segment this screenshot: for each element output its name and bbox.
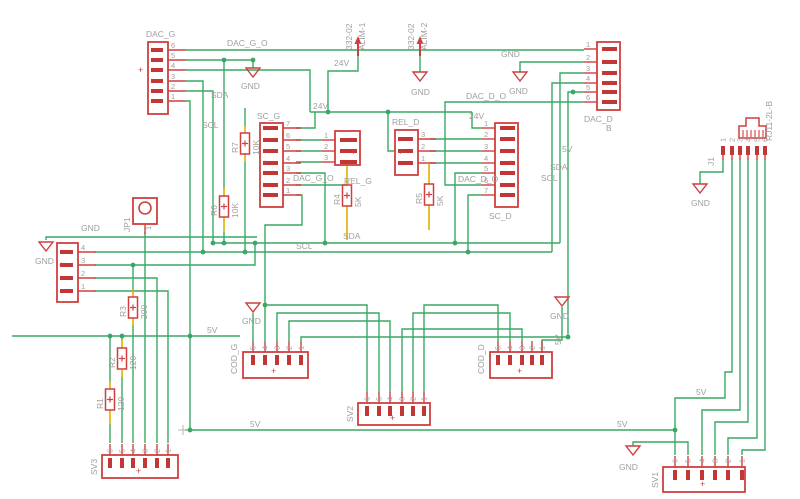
pin-pad (60, 250, 73, 254)
pin-pad (166, 458, 170, 468)
pin-number: 5 (684, 459, 693, 463)
net-wire[interactable] (296, 173, 325, 243)
pin-number: 2 (724, 459, 733, 463)
pin-number: 2 (324, 142, 328, 151)
gnd-symbol-icon[interactable] (513, 72, 527, 81)
pin-pad (763, 146, 767, 155)
pin-number: 1 (586, 40, 590, 49)
pin-number: 1 (738, 459, 747, 463)
part-value-r1[interactable]: 120 (116, 397, 126, 411)
part-value-alim1[interactable]: 332-02 (344, 23, 354, 50)
pin-number: 2 (409, 397, 418, 401)
net-wire[interactable] (265, 195, 302, 341)
polarity-plus: + (138, 65, 143, 75)
pin-number: 3 (711, 459, 720, 463)
pin-pad (520, 355, 524, 365)
part-name-jp1[interactable]: JP1 (122, 217, 132, 232)
gnd-label[interactable]: GND (411, 87, 430, 97)
part-name-sc-d[interactable]: SC_D (489, 211, 512, 221)
pin-pad (713, 470, 717, 480)
pin-number: 4 (698, 459, 707, 463)
part-name-r5[interactable]: R5 (414, 193, 424, 204)
pin-pad (721, 146, 725, 155)
net-wire[interactable] (560, 73, 584, 243)
pin-number: 6 (363, 397, 372, 401)
junction-dot (108, 334, 113, 339)
pin-pad (746, 146, 750, 155)
pin-pad (155, 458, 159, 468)
net-wire[interactable] (46, 237, 257, 240)
pin-pad (398, 161, 413, 165)
polarity-plus: + (398, 147, 403, 157)
pin-number: 5 (586, 83, 590, 92)
part-name-alim1[interactable]: ALIM-1 (357, 22, 367, 50)
net-label-dac-g-o[interactable]: DAC_G_O (227, 38, 268, 48)
pin-number: 5 (286, 142, 290, 151)
part-name-r7[interactable]: R7 (230, 142, 240, 153)
net-label-24v[interactable]: 24V (334, 58, 349, 68)
net-label-gnd[interactable]: GND (501, 49, 520, 59)
net-label-sda[interactable]: SDA (550, 162, 568, 172)
net-wire[interactable] (742, 160, 765, 455)
pin-number: 7 (286, 119, 290, 128)
part-value-alim2[interactable]: 332-02 (406, 23, 416, 50)
polarity-plus: + (517, 366, 522, 376)
pin-number: 7 (484, 186, 488, 195)
pin-pad (299, 355, 303, 365)
net-wire[interactable] (520, 62, 584, 72)
net-wire[interactable] (424, 305, 498, 392)
junction-dot (131, 263, 136, 268)
part-name-cod-d[interactable]: COD_D (476, 344, 486, 374)
gnd-symbol-icon[interactable] (626, 446, 640, 455)
pin-pad (686, 470, 690, 480)
pin-pad (540, 355, 544, 365)
junction-dot (566, 335, 571, 340)
net-wire[interactable] (296, 112, 315, 128)
pin-pad (500, 137, 515, 141)
pin-number: 3 (518, 346, 527, 350)
net-label-sda[interactable]: SDA (343, 231, 361, 241)
pin-pad (738, 146, 742, 155)
pin-number: 3 (81, 256, 85, 265)
polarity-plus: + (263, 158, 268, 168)
junction-dot (251, 58, 256, 63)
polarity-plus: + (390, 413, 395, 423)
pin-number: 5 (249, 346, 258, 350)
gnd-label[interactable]: GND (35, 256, 54, 266)
junction-dot (263, 303, 268, 308)
gnd-label[interactable]: GND (241, 81, 260, 91)
net-wire[interactable] (186, 60, 253, 68)
pin-number: 3 (586, 64, 590, 73)
pin-number: 4 (129, 449, 138, 453)
junction-dot (466, 250, 471, 255)
part-value-r7[interactable]: 10K (251, 140, 261, 155)
pin-pad (275, 355, 279, 365)
pin-pad (365, 406, 369, 416)
polarity-plus: + (351, 147, 356, 157)
pin-number: 2 (484, 130, 488, 139)
pin-pad (287, 355, 291, 365)
pin-pad (602, 60, 617, 64)
pin-pad (263, 183, 278, 187)
net-label-5v[interactable]: 5V (617, 419, 628, 429)
pin-number: 2 (171, 82, 175, 91)
junction-dot (222, 58, 227, 63)
net-label-gnd[interactable]: GND (81, 223, 100, 233)
pin-pad (143, 458, 147, 468)
part-name-rel-d[interactable]: REL_D (392, 117, 419, 127)
gnd-symbol-icon[interactable] (39, 242, 53, 251)
part-name-sv2[interactable]: SV2 (345, 406, 355, 422)
pin-number: 1 (297, 346, 306, 350)
part-value-dac-d[interactable]: B (606, 123, 612, 133)
pin-pad (151, 89, 163, 93)
junction-dot (386, 110, 391, 115)
polarity-plus: + (609, 78, 614, 88)
net-wire[interactable] (186, 81, 203, 252)
pin-number: 5 (171, 51, 175, 60)
net-label-dac-g-o[interactable]: DAC_G_O (293, 173, 334, 183)
part-name-r3[interactable]: R3 (118, 306, 128, 317)
part-name-sc-g[interactable]: SC_G (257, 111, 280, 121)
pin-number: 5 (484, 164, 488, 173)
part-name-sv3[interactable]: SV3 (89, 459, 99, 475)
pin-number: 2 (421, 142, 425, 151)
net-label-5v[interactable]: 5V (250, 419, 261, 429)
connector-dac_g[interactable] (148, 42, 168, 114)
pin-number: 6 (586, 93, 590, 102)
pin-number: 4 (286, 154, 290, 163)
pin-pad (120, 458, 124, 468)
gnd-label[interactable]: GND (509, 86, 528, 96)
pin-number: 4 (484, 154, 488, 163)
pin-number: 1 (484, 119, 488, 128)
pin-number: 3 (484, 142, 488, 151)
pin-number: 3 (141, 449, 150, 453)
pin-number: 4 (81, 243, 85, 252)
junction-dot (253, 241, 258, 246)
gnd-label[interactable]: GND (550, 311, 569, 321)
junction-dot (211, 241, 216, 246)
pin-pad (377, 406, 381, 416)
pin-number: 4 (261, 346, 270, 350)
pin-number: 3 (324, 153, 328, 162)
gnd-symbol-icon[interactable] (413, 72, 427, 81)
pin-pad (151, 48, 163, 52)
pin-number: 5 (118, 449, 127, 453)
net-label-5v[interactable]: 5V (553, 334, 563, 345)
pin-number: 2 (81, 269, 85, 278)
pin-pad (263, 138, 278, 142)
part-value-r2[interactable]: 120 (128, 356, 138, 370)
part-name-r4[interactable]: R4 (332, 194, 342, 205)
polarity-plus: + (700, 479, 705, 489)
pin-pad (398, 137, 413, 141)
pin-pad (340, 138, 357, 142)
pin-pad (500, 126, 515, 130)
junction-dot (120, 334, 125, 339)
junction-dot (323, 241, 328, 246)
pin-number: 1 (719, 138, 728, 142)
pin-number: 5 (494, 346, 503, 350)
pin-pad (740, 470, 744, 480)
schematic-sheet: GNDGNDGNDGNDGNDGNDGNDGNDGNDGND654321DAC_… (0, 0, 800, 499)
pin-pad (263, 355, 267, 365)
part-name-cod-g[interactable]: COD_G (229, 344, 239, 374)
polarity-plus: + (271, 366, 276, 376)
gnd-label[interactable]: GND (691, 198, 710, 208)
connector-dac_d[interactable] (597, 42, 620, 110)
part-name-alim2[interactable]: ALIM-2 (419, 22, 429, 50)
pin-pad (400, 406, 404, 416)
pin-number: 6 (106, 449, 115, 453)
pin-pad (60, 276, 73, 280)
pin-pad (263, 126, 278, 130)
pin-number: 3 (171, 72, 175, 81)
net-wire[interactable] (95, 243, 255, 265)
junction-dot (201, 250, 206, 255)
pin-pad (602, 90, 617, 94)
pin-number: 3 (286, 164, 290, 173)
pin-pad (496, 355, 500, 365)
pin-number: 2 (285, 346, 294, 350)
pin-pad (340, 160, 357, 164)
polarity-plus: + (136, 466, 141, 476)
pin-number: 6 (171, 41, 175, 50)
junction-dot (222, 241, 227, 246)
gnd-label[interactable]: GND (242, 316, 261, 326)
pin-number: 3 (421, 130, 425, 139)
pin-pad (151, 68, 163, 72)
pin-pad (500, 149, 515, 153)
pin-number: 1 (164, 449, 173, 453)
pin-pad (500, 193, 515, 197)
net-label-24v[interactable]: 24V (469, 111, 484, 121)
part-value-j1[interactable]: RJ11-2L-B (764, 101, 774, 141)
pin-pad (500, 183, 515, 187)
pin-pad (263, 171, 278, 175)
junction-dot (453, 241, 458, 246)
junction-dot (188, 334, 193, 339)
pin-pad (263, 149, 278, 153)
pin-pad (422, 406, 426, 416)
pin-number: 1 (421, 154, 425, 163)
pin-number: 4 (386, 397, 395, 401)
pin-pad (673, 470, 677, 480)
pin-pad (602, 100, 617, 104)
pin-pad (151, 58, 163, 62)
pin-pad (251, 355, 255, 365)
junction-dot (243, 250, 248, 255)
part-value-r3[interactable]: 200 (139, 305, 149, 319)
gnd-symbol-icon[interactable] (246, 303, 260, 312)
pin-number: 5 (375, 397, 384, 401)
pin-pad (108, 458, 112, 468)
pin-pad (131, 458, 135, 468)
pin-number: 3 (273, 346, 282, 350)
net-label-scl[interactable]: SCL (202, 120, 219, 130)
part-name-sv1[interactable]: SV1 (650, 472, 660, 488)
pin-number: 1 (171, 92, 175, 101)
net-label-5v[interactable]: 5V (562, 144, 573, 154)
net-wire[interactable] (568, 92, 584, 337)
net-label-scl[interactable]: SCL (541, 173, 558, 183)
pin-pad (151, 99, 163, 103)
junction-dot (188, 428, 193, 433)
pin-pad (508, 355, 512, 365)
net-wire[interactable] (289, 321, 390, 392)
pin-number: 3 (398, 397, 407, 401)
part-name-r1[interactable]: R1 (95, 398, 105, 409)
part-value-r5[interactable]: 5K (435, 195, 445, 206)
net-label-5v[interactable]: 5V (696, 387, 707, 397)
pin-pad (60, 289, 73, 293)
pin-number: 1 (538, 346, 547, 350)
pin-number: 2 (528, 346, 537, 350)
part-value-r4[interactable]: 5K (353, 196, 363, 207)
part-name-r6[interactable]: R6 (209, 205, 219, 216)
pin-pad (726, 470, 730, 480)
pin-number: 1 (286, 186, 290, 195)
junction-dot (571, 90, 576, 95)
pin-pad (411, 406, 415, 416)
net-wire[interactable] (633, 442, 688, 455)
net-label-sda[interactable]: SDA (211, 90, 229, 100)
part-name-j1[interactable]: J1 (706, 157, 716, 166)
pin-number: 6 (671, 459, 680, 463)
pin-pad (263, 193, 278, 197)
pin-number: 4 (586, 74, 590, 83)
part-value-r6[interactable]: 10K (230, 203, 240, 218)
net-label-5v[interactable]: 5V (207, 325, 218, 335)
pin-number: 4 (506, 346, 515, 350)
pin-pad (730, 146, 734, 155)
net-wire[interactable] (402, 329, 522, 392)
pin-pad (602, 71, 617, 75)
polarity-plus: + (508, 158, 513, 168)
pin-pad (602, 47, 617, 51)
pin-number: 2 (153, 449, 162, 453)
pin-number: 2 (586, 53, 590, 62)
net-label-24v[interactable]: 24V (313, 101, 328, 111)
schematic-canvas[interactable]: GNDGNDGNDGNDGNDGNDGNDGNDGNDGND654321DAC_… (0, 0, 800, 499)
pin-number: 1 (324, 131, 328, 140)
jp1-pin-circle-icon (139, 202, 151, 214)
net-wire[interactable] (301, 337, 568, 341)
pin-pad (755, 146, 759, 155)
pin-pad (500, 171, 515, 175)
polarity-plus: + (59, 260, 64, 270)
junction-dot (673, 428, 678, 433)
pin-number: 2 (286, 176, 290, 185)
pin-number: 4 (744, 138, 753, 142)
part-name-dac-g[interactable]: DAC_G (146, 29, 175, 39)
net-label-dac-d-o[interactable]: DAC_D_O (466, 91, 507, 101)
pin-number: 6 (286, 131, 290, 140)
pin-number: 1 (420, 397, 429, 401)
gnd-symbol-icon[interactable] (555, 297, 569, 306)
part-name-r2[interactable]: R2 (107, 357, 117, 368)
pin-pad (151, 79, 163, 83)
pin-number: 4 (171, 61, 175, 70)
net-label-dac-d-o[interactable]: DAC_D_O (458, 174, 499, 184)
gnd-label[interactable]: GND (619, 462, 638, 472)
gnd-symbol-icon[interactable] (693, 184, 707, 193)
net-label-scl[interactable]: SCL (296, 241, 313, 251)
pin-pad (530, 355, 534, 365)
pin-number: 1 (144, 226, 153, 230)
pin-number: 1 (81, 282, 85, 291)
